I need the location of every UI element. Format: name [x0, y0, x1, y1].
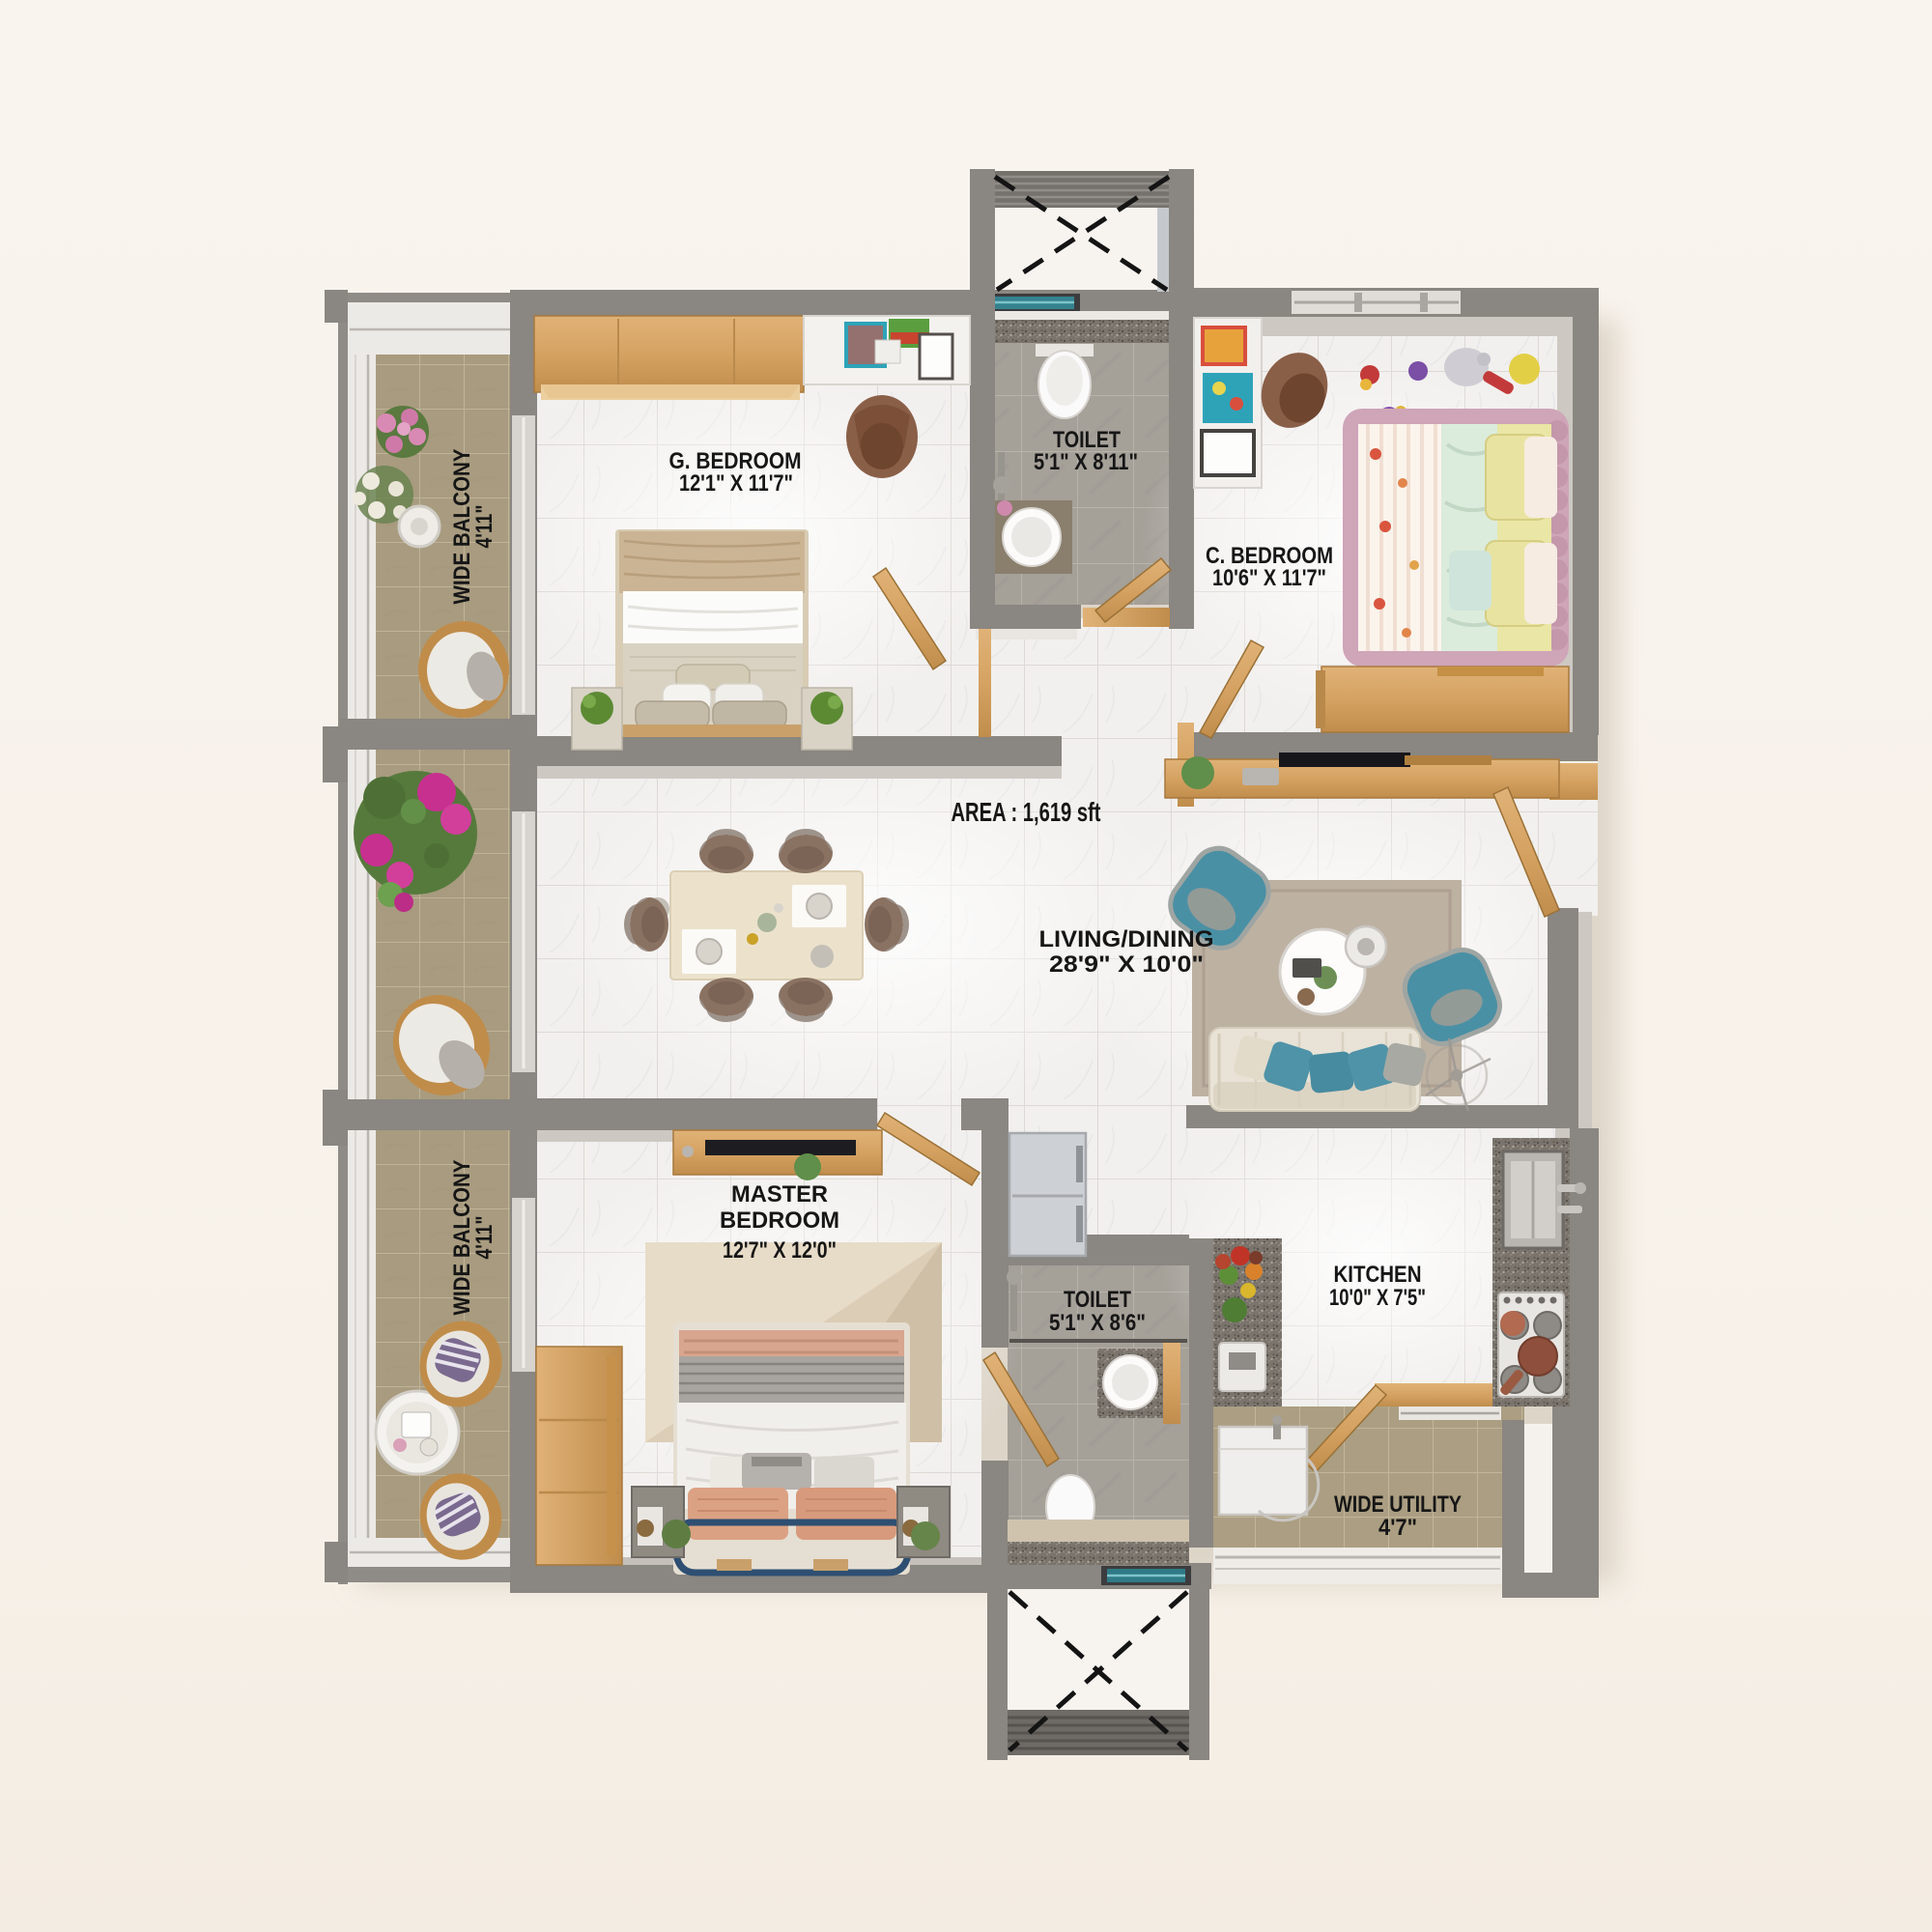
svg-text:4'11": 4'11": [471, 1216, 497, 1260]
svg-text:10'0" X 7'5": 10'0" X 7'5": [1329, 1285, 1426, 1311]
svg-text:TOILET: TOILET: [1064, 1287, 1131, 1313]
svg-text:5'1" X 8'11": 5'1" X 8'11": [1034, 449, 1138, 475]
svg-text:12'1" X 11'7": 12'1" X 11'7": [679, 470, 793, 497]
svg-text:12'7" X 12'0": 12'7" X 12'0": [723, 1237, 837, 1264]
svg-text:4'11": 4'11": [471, 505, 497, 549]
svg-text:AREA : 1,619 sft: AREA : 1,619 sft: [952, 797, 1101, 827]
svg-text:KITCHEN: KITCHEN: [1334, 1262, 1422, 1288]
svg-text:WIDE UTILITY: WIDE UTILITY: [1334, 1492, 1462, 1518]
svg-text:MASTER: MASTER: [731, 1181, 828, 1207]
svg-text:5'1" X 8'6": 5'1" X 8'6": [1049, 1310, 1146, 1336]
svg-text:10'6" X 11'7": 10'6" X 11'7": [1212, 565, 1326, 591]
svg-text:4'7": 4'7": [1378, 1515, 1417, 1541]
svg-text:28'9" X 10'0": 28'9" X 10'0": [1049, 952, 1204, 978]
svg-text:BEDROOM: BEDROOM: [720, 1207, 839, 1234]
svg-text:LIVING/DINING: LIVING/DINING: [1039, 926, 1214, 952]
